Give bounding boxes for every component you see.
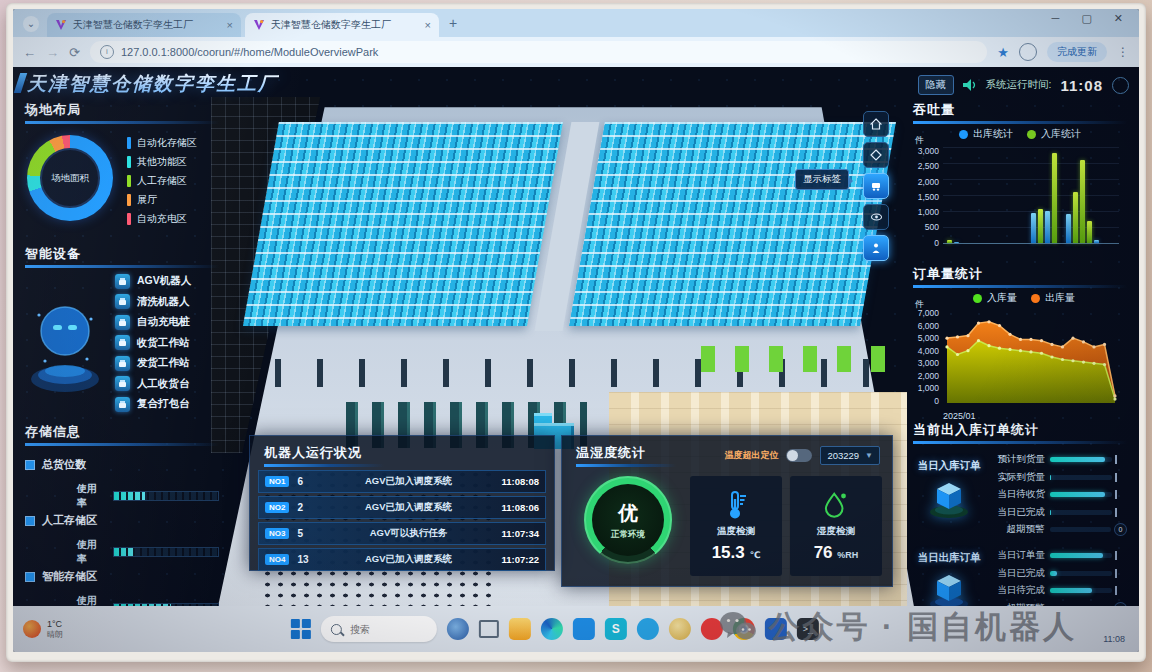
device-item[interactable]: AGV机器人 — [115, 271, 219, 292]
water-drop-icon — [824, 490, 848, 520]
throughput-chart: 3,0002,5002,0001,5001,0005000 — [913, 147, 1119, 247]
file-explorer-icon[interactable] — [509, 618, 531, 640]
site-favicon — [253, 19, 265, 31]
tab-search-chevron-icon[interactable]: ⌄ — [23, 16, 39, 32]
storage-section: 存储信息 总货位数 使用率 人工存储区 使用率 智能存储区 使用率 — [25, 423, 219, 606]
task-view-icon[interactable] — [479, 620, 499, 638]
terminal-icon[interactable]: >_ — [797, 618, 819, 640]
donut-center-label: 场地面积 — [51, 172, 89, 185]
stat-row: 当日已完成 — [987, 504, 1127, 522]
device-item[interactable]: 收货工作站 — [115, 333, 219, 354]
devices-section: 智能设备 AGV机器人 清洗机器人 — [25, 245, 219, 417]
orders-section: 订单量统计 件 入库量 出库量 7,0006,0005,0004,0003,00… — [913, 265, 1127, 417]
track-end-tick — [1115, 473, 1117, 482]
device-item[interactable]: 发货工作站 — [115, 353, 219, 374]
home-view-button[interactable] — [863, 111, 889, 137]
station-select[interactable]: 203229▼ — [820, 446, 880, 465]
stat-row: 当日待收货 — [987, 486, 1127, 504]
site-layout-legend: 自动化存储区 其他功能区 人工存储区 展厅 自动充电区 — [127, 133, 197, 228]
bullet-icon — [25, 516, 35, 526]
green-conveyors — [701, 346, 886, 371]
humidity-card: 湿度检测 76 %RH — [790, 476, 882, 576]
manual-receiving-icon — [115, 376, 130, 391]
tab-close-icon[interactable]: × — [227, 19, 233, 31]
legend-chip — [127, 156, 131, 168]
system-tray-clock[interactable]: 11:08 — [1103, 634, 1125, 645]
bullet-icon — [25, 460, 35, 470]
window-maximize-button[interactable]: ▢ — [1081, 12, 1091, 25]
legend-chip — [127, 137, 131, 149]
throughput-bar — [1031, 213, 1036, 243]
url-text: 127.0.0.1:8000/coorun/#/home/ModuleOverv… — [121, 46, 378, 58]
search-icon — [331, 624, 342, 635]
left-column: 场地布局 场地面积 自动化存储区 其他功能区 人工存储区 展厅 自动充电区 智能… — [25, 67, 219, 606]
orders-chart: 7,0006,0005,0004,0003,0002,0001,0000 — [913, 309, 1119, 421]
env-grade-sub: 正常环境 — [611, 529, 645, 541]
track-end-tick — [1115, 455, 1117, 464]
profile-avatar[interactable] — [1019, 43, 1037, 61]
forward-button[interactable]: → — [46, 45, 59, 60]
new-tab-button[interactable]: + — [449, 15, 457, 31]
outbound-rows: 当日订单量 当日已完成 当日待完成 超期预警0 — [987, 547, 1127, 606]
browser-update-button[interactable]: 完成更新 — [1047, 42, 1107, 62]
robot-log-row: NO2 2 AGV已加入调度系统 11:08:06 — [258, 496, 546, 519]
receiving-station-icon — [115, 335, 130, 350]
thermometer-icon — [725, 490, 747, 520]
throughput-legend: 出库统计 入库统计 — [959, 127, 1081, 141]
show-agv-labels-button[interactable] — [863, 173, 889, 199]
legend-chip — [127, 213, 131, 225]
throughput-bar — [1038, 209, 1043, 243]
storage-group: 智能存储区 使用率 — [25, 569, 219, 606]
robot-log-row: NO3 5 AGV可以执行任务 11:07:34 — [258, 522, 546, 545]
storage-group: 总货位数 使用率 — [25, 457, 219, 510]
robot-status-panel: 机器人运行状况 NO1 6 AGV已加入调度系统 11:08:08 NO2 2 … — [249, 435, 555, 571]
robot-log-row: NO4 13 AGV已加入调度系统 11:07:22 — [258, 548, 546, 571]
weather-icon — [23, 620, 41, 638]
section-title: 吞吐量 — [913, 101, 1127, 124]
microsoft-store-icon[interactable] — [573, 618, 595, 640]
stat-row: 当日订单量 — [987, 547, 1127, 565]
rack-block-right — [569, 122, 896, 326]
charging-pile-icon — [115, 315, 130, 330]
site-layout-section: 场地布局 场地面积 自动化存储区 其他功能区 人工存储区 展厅 自动充电区 — [25, 101, 219, 239]
window-minimize-button[interactable]: ─ — [1052, 12, 1060, 25]
legend-chip — [127, 194, 131, 206]
tab-title: 天津智慧仓储数字孪生工厂 — [271, 18, 419, 32]
screen: ⌄ 天津智慧仓储数字孪生工厂 × 天津智慧仓储数字孪生工厂 × + ─ ▢ ✕ … — [13, 9, 1139, 652]
environment-gauge: 优 正常环境 — [584, 476, 672, 564]
legend-dot — [973, 294, 982, 303]
legend-item: 自动充电区 — [127, 209, 197, 228]
track-end-tick — [1115, 551, 1117, 560]
throughput-bar — [1080, 160, 1085, 243]
device-item[interactable]: 自动充电桩 — [115, 312, 219, 333]
site-info-icon[interactable]: i — [100, 45, 114, 59]
taskbar-search[interactable] — [321, 616, 437, 642]
throughput-bar — [1073, 192, 1078, 243]
address-bar[interactable]: i 127.0.0.1:8000/coorun/#/home/ModuleOve… — [90, 41, 987, 63]
legend-item: 自动化存储区 — [127, 133, 197, 152]
inbound-cube-icon — [913, 479, 985, 523]
section-title: 存储信息 — [25, 423, 219, 446]
temp-locate-toggle[interactable] — [786, 449, 812, 462]
agv-robot-icon — [115, 274, 130, 289]
stat-row: 实际到货量 — [987, 469, 1127, 487]
section-title: 场地布局 — [25, 101, 219, 124]
throughput-section: 吞吐量 件 出库统计 入库统计 3,0002,5002,0001,5001,00… — [913, 101, 1127, 259]
overdue-badge: 0 — [1114, 523, 1127, 536]
x-axis-label: 2025/01 — [943, 411, 1119, 421]
s-app-icon[interactable]: S — [605, 618, 627, 640]
browser-menu-icon[interactable]: ⋮ — [1117, 45, 1129, 59]
area-plot — [943, 309, 1119, 405]
y-axis-unit: 件 — [915, 135, 924, 145]
donut-chart: 场地面积 — [27, 135, 113, 221]
tab-close-icon[interactable]: × — [425, 19, 431, 31]
device-item[interactable]: 复合打包台 — [115, 394, 219, 415]
photos-app-icon[interactable] — [765, 618, 787, 640]
temperature-card: 温度检测 15.3 ℃ — [690, 476, 782, 576]
usage-bar — [113, 491, 219, 501]
stat-row: 超期预警0 — [987, 521, 1127, 539]
throughput-bar — [1045, 211, 1050, 243]
chevron-down-icon: ▼ — [865, 451, 873, 460]
current-orders-section: 当前出入库订单统计 当日入库订单 预计到货量 实际到货量 当日待收货 — [913, 421, 1127, 606]
dashboard: 天津智慧仓储数字孪生工厂 隐藏 系统运行时间: 11:08 显示标签 — [13, 67, 1139, 606]
storage-group: 人工存储区 使用率 — [25, 513, 219, 566]
browser-toolbar: ← → ⟳ i 127.0.0.1:8000/coorun/#/home/Mod… — [13, 37, 1139, 67]
inbound-orders-group: 当日入库订单 预计到货量 实际到货量 当日待收货 当日已完成 超期预警0 — [913, 451, 1127, 543]
device-list: AGV机器人 清洗机器人 自动充电桩 收货工作站 发货工作站 人工收货台 复合打… — [115, 271, 219, 415]
stat-row: 当日已完成 — [987, 565, 1127, 583]
edge-browser-icon[interactable] — [541, 618, 563, 640]
windows-taskbar: 1°C晴朗 S >_ 11:08 — [13, 606, 1139, 652]
environment-panel: 温湿度统计 温度超出定位 203229▼ 优 正常环境 — [561, 435, 893, 587]
gold-app-icon[interactable] — [669, 618, 691, 640]
telegram-icon[interactable] — [637, 618, 659, 640]
chrome-browser-icon[interactable] — [733, 618, 755, 640]
stat-row: 预计到货量 — [987, 451, 1127, 469]
right-column: 吞吐量 件 出库统计 入库统计 3,0002,5002,0001,5001,00… — [913, 67, 1127, 606]
bar-plot-area — [943, 147, 1119, 244]
throughput-bar — [1087, 221, 1092, 243]
throughput-bar — [1052, 153, 1057, 243]
legend-dot — [959, 130, 968, 139]
section-title: 当前出入库订单统计 — [913, 421, 1127, 444]
back-button[interactable]: ← — [23, 45, 36, 60]
section-title: 订单量统计 — [913, 265, 1127, 288]
monitor-bezel: ⌄ 天津智慧仓储数字孪生工厂 × 天津智慧仓储数字孪生工厂 × + ─ ▢ ✕ … — [6, 3, 1146, 662]
orders-legend: 入库量 出库量 — [973, 291, 1075, 305]
browser-tab-1[interactable]: 天津智慧仓储数字孪生工厂 × — [47, 13, 241, 37]
legend-item: 展厅 — [127, 190, 197, 209]
track-end-tick — [1115, 569, 1117, 578]
layers-cube-button[interactable] — [863, 142, 889, 168]
browser-tab-2[interactable]: 天津智慧仓储数字孪生工厂 × — [245, 13, 439, 37]
person-view-button[interactable] — [863, 235, 889, 261]
throughput-bar — [1094, 240, 1099, 243]
track-end-tick — [1115, 508, 1117, 517]
cleaning-robot-icon — [115, 294, 130, 309]
track-end-tick — [1115, 586, 1117, 595]
throughput-bar — [1066, 214, 1071, 243]
legend-dot — [1031, 294, 1040, 303]
device-item[interactable]: 人工收货台 — [115, 374, 219, 395]
throughput-bar — [947, 240, 952, 243]
legend-item: 人工存储区 — [127, 171, 197, 190]
shipping-station-icon — [115, 356, 130, 371]
legend-chip — [127, 175, 131, 187]
rack-block-left — [243, 122, 563, 326]
refresh-button[interactable]: ⟳ — [69, 45, 80, 60]
throughput-bar — [954, 242, 959, 243]
usage-bar — [113, 547, 219, 557]
env-grade: 优 — [618, 500, 638, 527]
start-button[interactable] — [291, 619, 311, 639]
device-item[interactable]: 清洗机器人 — [115, 292, 219, 313]
track-end-tick — [1115, 490, 1117, 499]
stat-row: 当日待完成 — [987, 582, 1127, 600]
legend-item: 其他功能区 — [127, 152, 197, 171]
taskbar-weather-widget[interactable]: 1°C晴朗 — [23, 619, 63, 639]
packing-station-icon — [115, 397, 130, 412]
robot-illustration — [25, 275, 105, 403]
view-eye-button[interactable] — [863, 204, 889, 230]
legend-dot — [1027, 130, 1036, 139]
section-title: 智能设备 — [25, 245, 219, 268]
browser-tabstrip: ⌄ 天津智慧仓储数字孪生工厂 × 天津智慧仓储数字孪生工厂 × + ─ ▢ ✕ — [13, 9, 1139, 37]
temp-locate-label: 温度超出定位 — [724, 449, 778, 462]
opera-browser-icon[interactable] — [701, 618, 723, 640]
bookmark-star-icon[interactable]: ★ — [997, 45, 1009, 60]
search-input[interactable] — [348, 623, 402, 636]
section-title: 温湿度统计 — [576, 444, 676, 467]
tab-title: 天津智慧仓储数字孪生工厂 — [73, 18, 221, 32]
show-labels-tooltip: 显示标签 — [795, 169, 849, 190]
bullet-icon — [25, 572, 35, 582]
widgets-icon[interactable] — [447, 618, 469, 640]
window-close-button[interactable]: ✕ — [1114, 12, 1123, 25]
site-favicon — [55, 19, 67, 31]
robot-log-row: NO1 6 AGV已加入调度系统 11:08:08 — [258, 470, 546, 493]
outbound-cube-icon — [913, 571, 985, 606]
scene-toolbar — [863, 111, 889, 261]
section-title: 机器人运行状况 — [264, 444, 384, 467]
inbound-rows: 预计到货量 实际到货量 当日待收货 当日已完成 超期预警0 — [987, 451, 1127, 539]
outbound-orders-group: 当日出库订单 当日订单量 当日已完成 当日待完成 超期预警0 — [913, 547, 1127, 606]
